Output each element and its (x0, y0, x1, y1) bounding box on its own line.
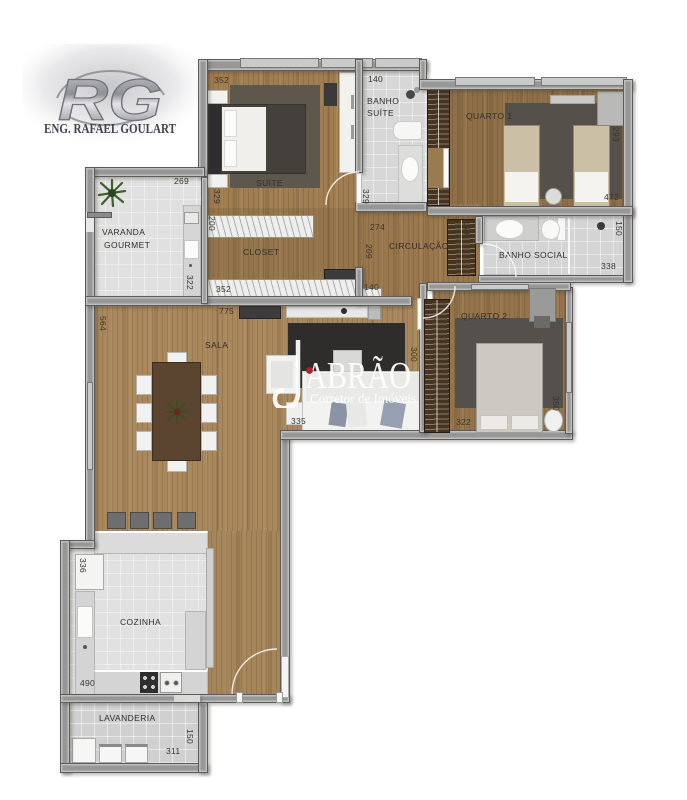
svg-text:Corretor de Imóveis: Corretor de Imóveis (310, 391, 416, 406)
